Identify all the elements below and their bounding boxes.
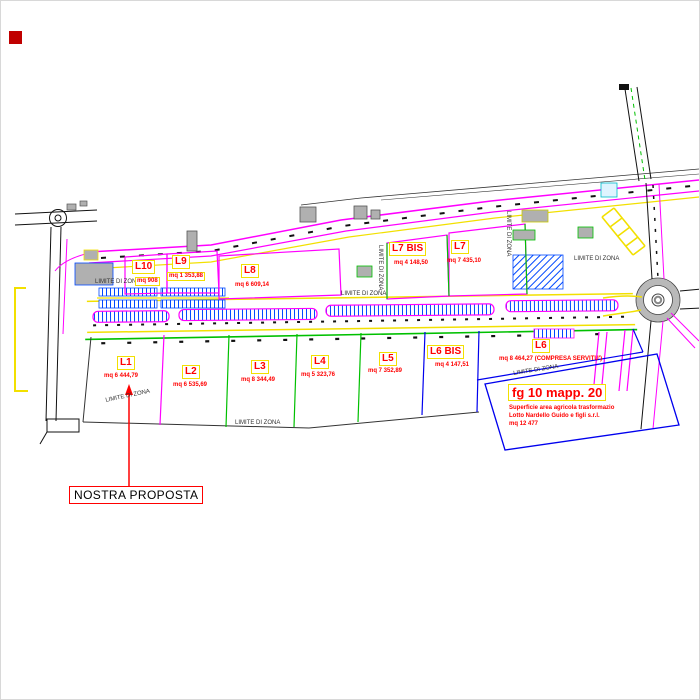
lot-area-l5: mq 7 352,89 — [368, 368, 402, 375]
boundary-label: LIMITE DI ZONA — [95, 279, 140, 285]
north-road — [619, 84, 651, 181]
lot-area-l8: mq 6 609,14 — [235, 282, 269, 289]
lot-area-l9: mq 1 353,88 — [167, 272, 205, 281]
boundary-label: LIMITE DI ZONA — [341, 291, 386, 297]
lot-label-l10: L10 — [132, 260, 155, 274]
lot-area-l1: mq 6 444,79 — [104, 373, 138, 380]
lot-label-l8: L8 — [241, 264, 259, 278]
lot-label-l2: L2 — [182, 365, 200, 379]
boundary-label: LIMITE DI ZONA — [235, 420, 280, 426]
boundary-label: LIMITE DI ZONA — [574, 256, 619, 262]
parcel-boundary-fg10 — [485, 354, 679, 450]
parcel-note-line3: mq 12 477 — [509, 421, 538, 428]
lot-area-l7: mq 7 435,10 — [447, 258, 481, 265]
boundary-label: LIMITE DI ZONA — [505, 211, 511, 256]
lot-label-l5: L5 — [379, 352, 397, 366]
lot-label-l7: L7 — [451, 240, 469, 254]
parcel-note-title: fg 10 mapp. 20 — [508, 384, 606, 401]
proposal-callout: NOSTRA PROPOSTA — [69, 486, 203, 504]
lot-area-l3: mq 8 344,49 — [241, 377, 275, 384]
site-plan-canvas: L1 mq 6 444,79 L2 mq 6 535,69 L3 mq 8 34… — [0, 0, 700, 700]
lot-label-l3: L3 — [251, 360, 269, 374]
parking-rows-left — [97, 288, 229, 308]
lot-area-l6bis: mq 4 147,51 — [435, 362, 469, 369]
lot-label-l1: L1 — [117, 356, 135, 370]
cad-drawing — [1, 1, 700, 700]
lot-area-l4: mq 5 323,76 — [301, 372, 335, 379]
lot-area-l10: mq 908 — [135, 277, 160, 286]
lot-label-l6bis: L6 BIS — [427, 345, 464, 359]
parcel-note-line1: Superficie area agricola trasformazio — [509, 405, 614, 412]
lot-boundary-l8 — [219, 249, 341, 299]
lot-area-l6: mq 8 464,27 (COMPRESA SERVITU') — [499, 356, 602, 363]
lot-area-l2: mq 6 535,69 — [173, 382, 207, 389]
legend-red-square — [9, 31, 22, 44]
lot-label-l9: L9 — [172, 255, 190, 269]
lot-label-l4: L4 — [311, 355, 329, 369]
parcel-note-line2: Lotto Nardello Guido e figli s.r.l. — [509, 413, 600, 420]
lot-label-l7bis: L7 BIS — [389, 242, 426, 256]
yellow-ladder-road — [602, 208, 645, 255]
lot-area-l7bis: mq 4 148,50 — [394, 260, 428, 267]
lot-label-l6: L6 — [532, 339, 550, 353]
boundary-label: LIMITE DI ZONA — [377, 245, 383, 290]
